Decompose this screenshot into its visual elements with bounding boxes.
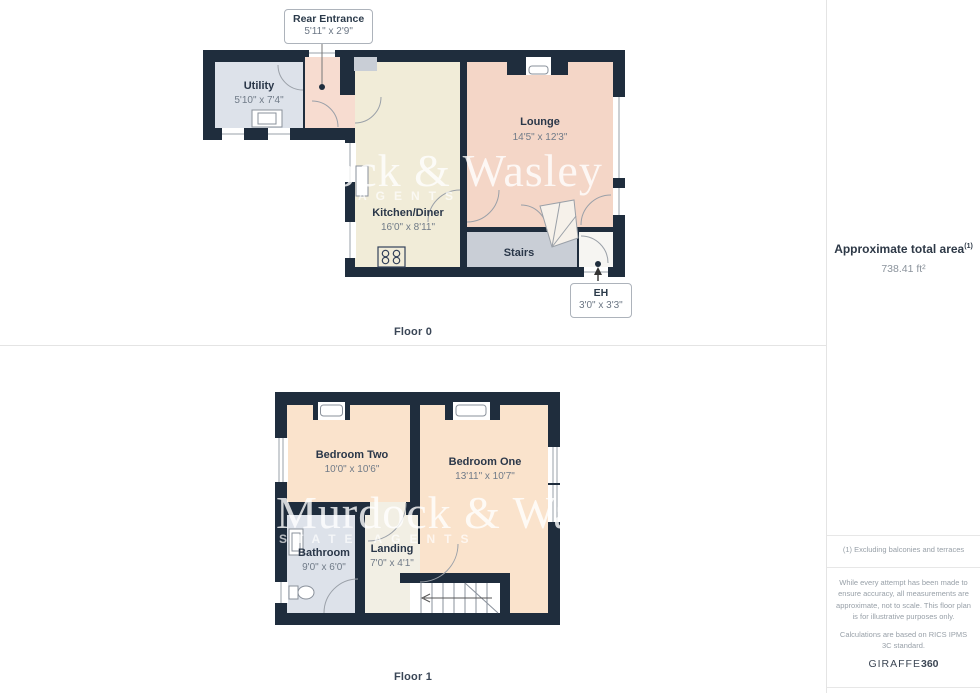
utility-dims: 5'10" x 7'4" (234, 95, 284, 106)
floor1-stairs (400, 573, 510, 618)
eh-callout: EH 3'0" x 3'3" (570, 283, 632, 318)
rear-hall-opening (340, 95, 355, 128)
chimney-breast-lounge (507, 50, 568, 75)
footnote-text: (1) Excluding balconies and terraces (827, 545, 980, 554)
standard-note-text: Calculations are based on RICS IPMS 3C s… (836, 629, 971, 652)
callout-title: Rear Entrance (293, 13, 364, 26)
floor0-plan: Utility 5'10" x 7'4" Kitchen/Diner 16'0"… (0, 0, 826, 345)
disclaimer-text: While every attempt has been made to ens… (836, 577, 971, 622)
floor0-label: Floor 0 (0, 326, 826, 338)
total-area-block: Approximate total area(1) 738.41 ft² (827, 242, 980, 275)
total-area-title-text: Approximate total area (834, 242, 964, 256)
bathroom-dims: 9'0" x 6'0" (302, 562, 346, 573)
bedroom-two-label: Bedroom Two (316, 449, 389, 461)
bathroom-label: Bathroom (298, 547, 350, 559)
callout-dims: 5'11" x 2'9" (293, 26, 364, 39)
floorplan-page: Utility 5'10" x 7'4" Kitchen/Diner 16'0"… (0, 0, 980, 693)
callout-title: EH (579, 287, 623, 300)
bedroom-one-dims: 13'11" x 10'7" (455, 471, 515, 482)
radiator-icon (456, 405, 486, 416)
radiator-icon (321, 405, 343, 416)
landing-dims: 7'0" x 4'1" (370, 558, 414, 569)
fireplace-icon (529, 66, 548, 74)
bedroom-one-label: Bedroom One (449, 456, 522, 468)
kitchen-counter-icon (356, 166, 368, 196)
lounge-dims: 14'5" x 12'3" (513, 132, 568, 143)
rear-entrance-callout: Rear Entrance 5'11" x 2'9" (284, 9, 373, 44)
chimney-breast-bedroom-two (313, 392, 350, 420)
sidebar-divider (827, 567, 980, 568)
chimney-breast-bedroom-one (445, 392, 500, 420)
kitchen-dims: 16'0" x 8'11" (381, 222, 436, 233)
utility-label: Utility (244, 80, 275, 92)
floor1-label: Floor 1 (0, 671, 826, 683)
giraffe360-logo: GIRAFFE360 (827, 658, 980, 670)
bedroom-two-dims: 10'0" x 10'6" (325, 464, 380, 475)
plan-area: Utility 5'10" x 7'4" Kitchen/Diner 16'0"… (0, 0, 826, 693)
total-area-title: Approximate total area(1) (827, 242, 980, 256)
lounge-label: Lounge (520, 116, 560, 128)
callout-dims: 3'0" x 3'3" (579, 300, 623, 313)
sidebar-divider (827, 687, 980, 688)
footnote-marker: (1) (964, 243, 973, 250)
room-kitchen (355, 62, 460, 267)
stairs-label: Stairs (504, 247, 535, 259)
floor1-plan: Bedroom Two 10'0" x 10'6" Bedroom One 13… (0, 346, 826, 693)
brand-name: GIRAFFE (868, 658, 921, 670)
landing-door-opening (370, 502, 406, 515)
utility-appliance-inner (258, 113, 276, 124)
brand-suffix: 360 (921, 658, 939, 670)
toilet-icon (289, 586, 298, 599)
total-area-value: 738.41 ft² (827, 263, 980, 275)
sidebar-divider (827, 535, 980, 536)
info-sidebar: Approximate total area(1) 738.41 ft² (1)… (826, 0, 980, 693)
kitchen-label: Kitchen/Diner (372, 207, 444, 219)
kitchen-vent (354, 57, 377, 71)
landing-label: Landing (371, 543, 414, 555)
